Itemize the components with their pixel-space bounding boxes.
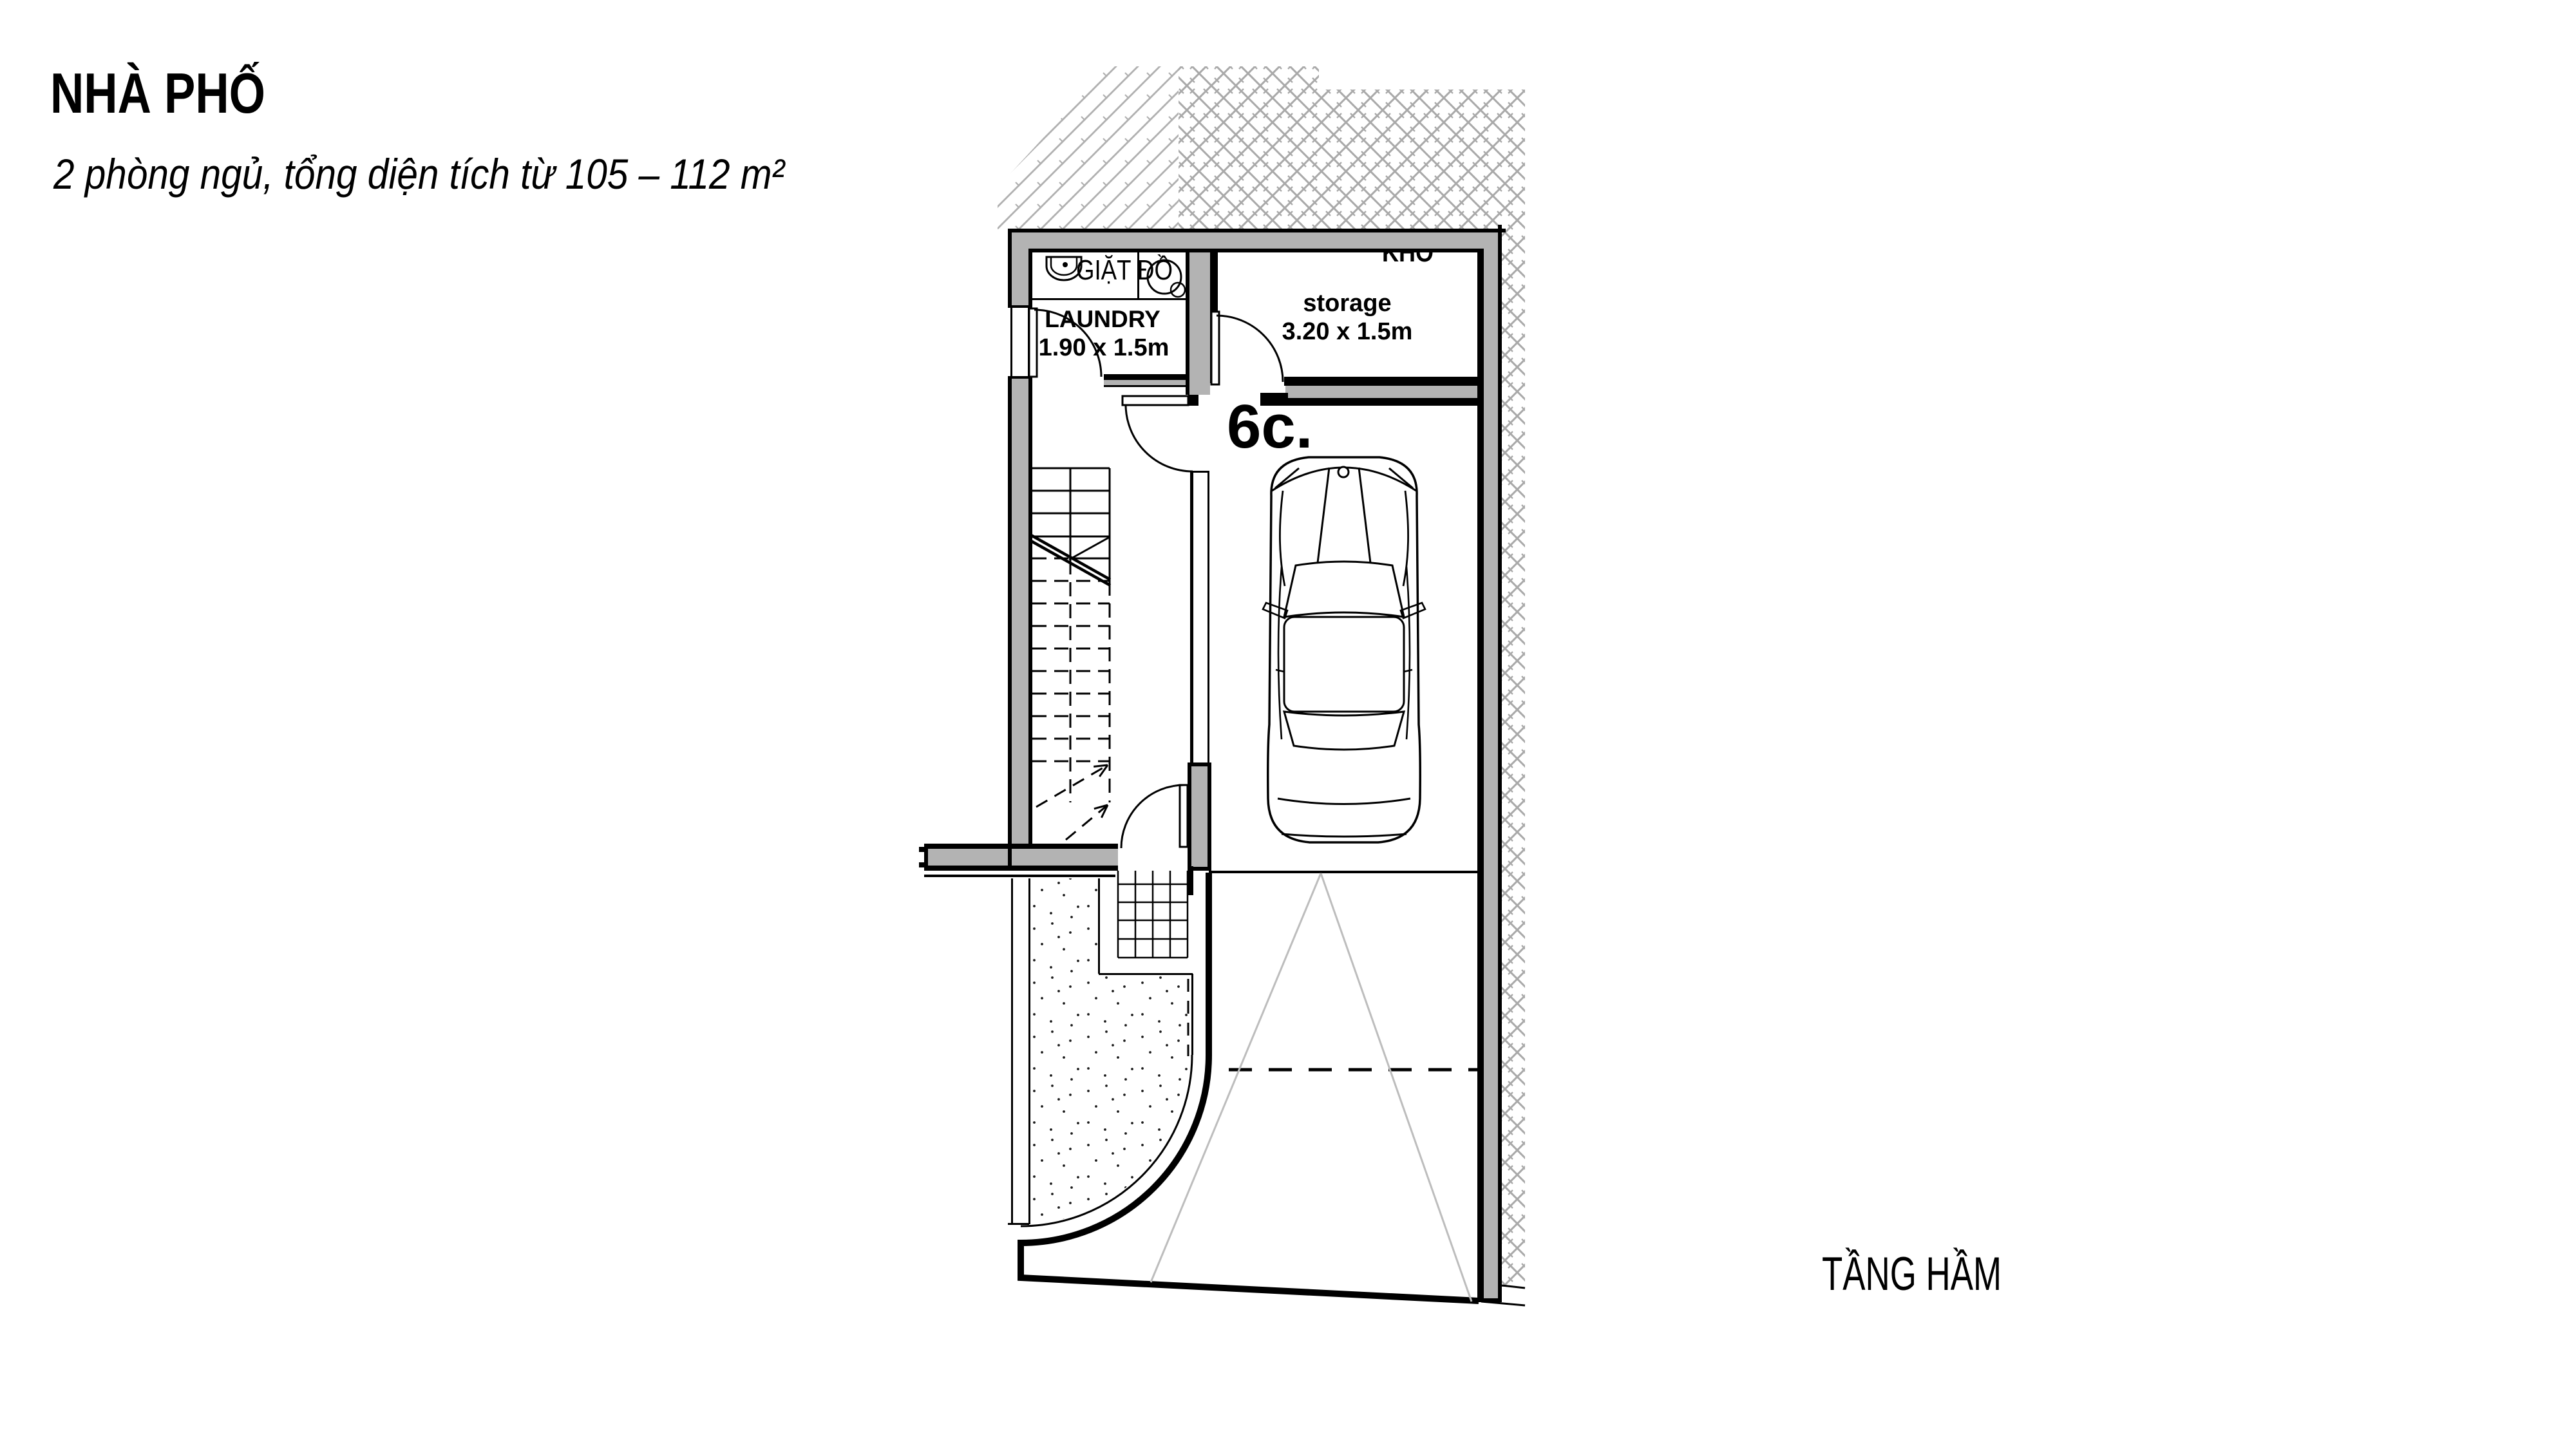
- svg-text:2 phòng ngủ, tổng diện tích từ: 2 phòng ngủ, tổng diện tích từ 105 – 112…: [53, 150, 786, 198]
- svg-text:LAUNDRY: LAUNDRY: [1045, 306, 1160, 332]
- svg-text:TẦNG HẦM: TẦNG HẦM: [1822, 1248, 2002, 1300]
- svg-text:GIẶT ĐỒ: GIẶT ĐỒ: [1076, 254, 1173, 286]
- svg-text:6c.: 6c.: [1227, 392, 1312, 461]
- svg-text:1.90 x 1.5m: 1.90 x 1.5m: [1039, 334, 1170, 361]
- svg-text:NHÀ PHỐ: NHÀ PHỐ: [50, 61, 265, 125]
- svg-text:3.20 x 1.5m: 3.20 x 1.5m: [1282, 318, 1413, 345]
- svg-text:storage: storage: [1303, 290, 1391, 317]
